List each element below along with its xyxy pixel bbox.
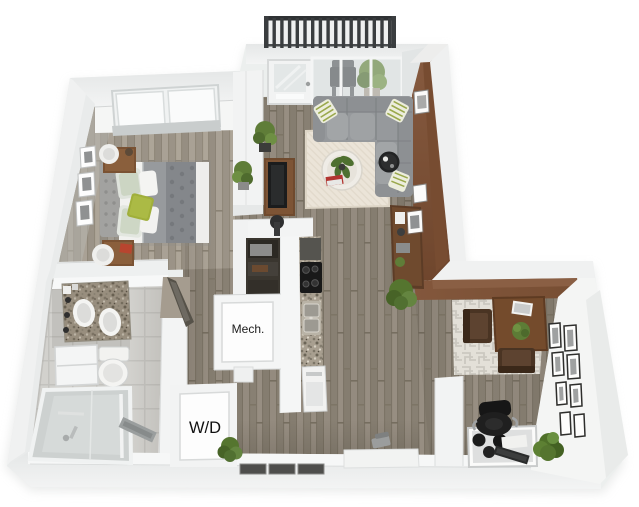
svg-text:W/D: W/D [189, 419, 221, 437]
svg-text:Mech.: Mech. [232, 322, 265, 336]
